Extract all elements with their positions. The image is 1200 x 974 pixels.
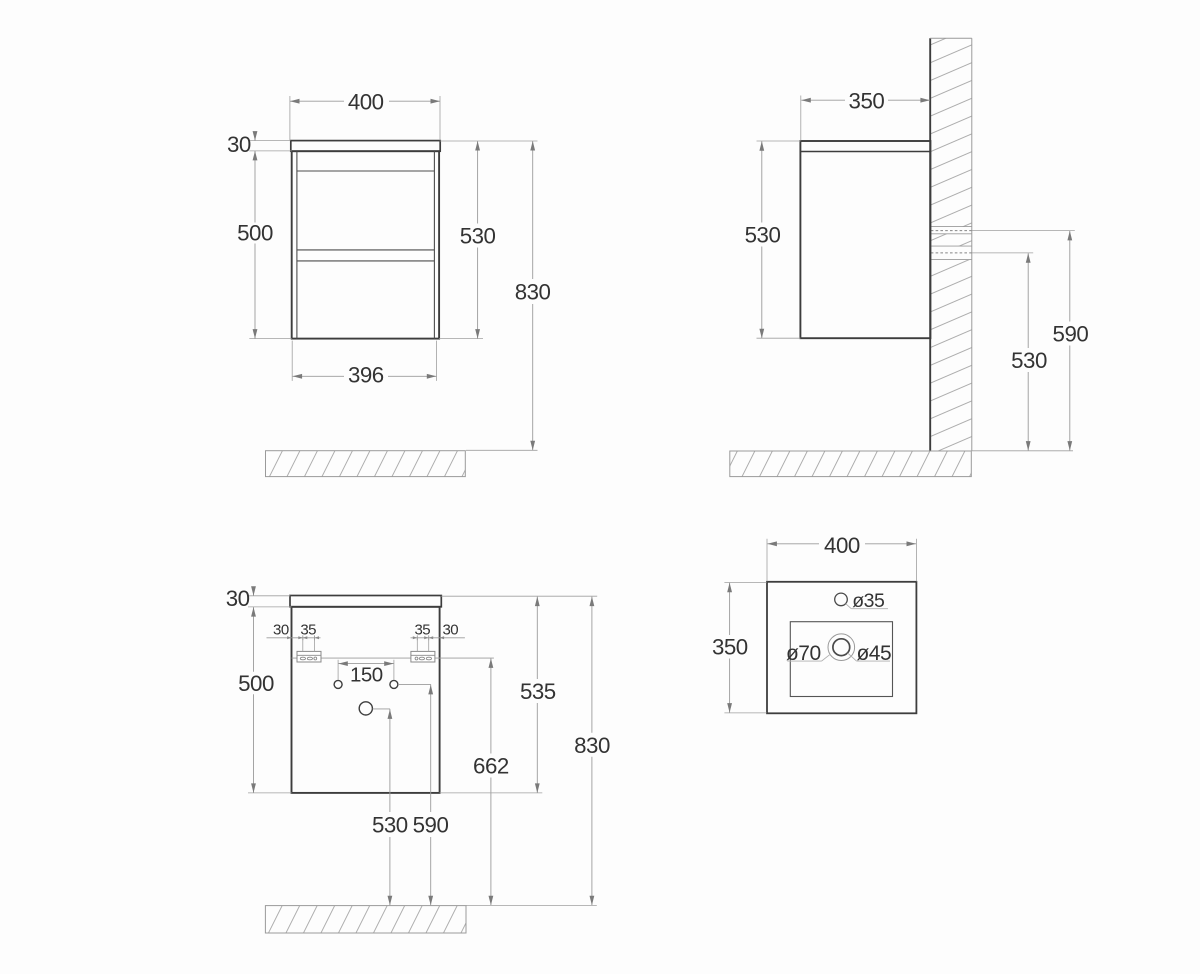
svg-text:35: 35 — [300, 622, 316, 639]
svg-text:30: 30 — [442, 622, 458, 639]
svg-text:590: 590 — [413, 813, 449, 838]
svg-text:400: 400 — [824, 533, 860, 558]
svg-text:535: 535 — [520, 679, 556, 704]
svg-text:150: 150 — [350, 663, 383, 686]
svg-text:350: 350 — [712, 635, 748, 660]
svg-text:590: 590 — [1053, 322, 1089, 347]
svg-text:662: 662 — [473, 754, 509, 779]
svg-text:30: 30 — [227, 132, 251, 157]
svg-text:530: 530 — [745, 223, 781, 248]
svg-text:830: 830 — [574, 733, 610, 758]
svg-text:530: 530 — [460, 224, 496, 249]
svg-text:400: 400 — [348, 90, 384, 115]
svg-text:500: 500 — [237, 221, 273, 246]
svg-text:30: 30 — [226, 586, 250, 611]
svg-text:ø45: ø45 — [856, 642, 891, 665]
svg-text:500: 500 — [238, 671, 274, 696]
svg-text:ø35: ø35 — [852, 590, 885, 612]
svg-text:530: 530 — [372, 813, 408, 838]
svg-text:30: 30 — [273, 622, 289, 639]
svg-text:530: 530 — [1011, 348, 1047, 373]
svg-text:ø70: ø70 — [786, 642, 821, 665]
svg-text:396: 396 — [348, 363, 384, 388]
svg-text:35: 35 — [414, 622, 430, 639]
svg-text:350: 350 — [849, 88, 885, 113]
svg-text:830: 830 — [515, 280, 551, 305]
